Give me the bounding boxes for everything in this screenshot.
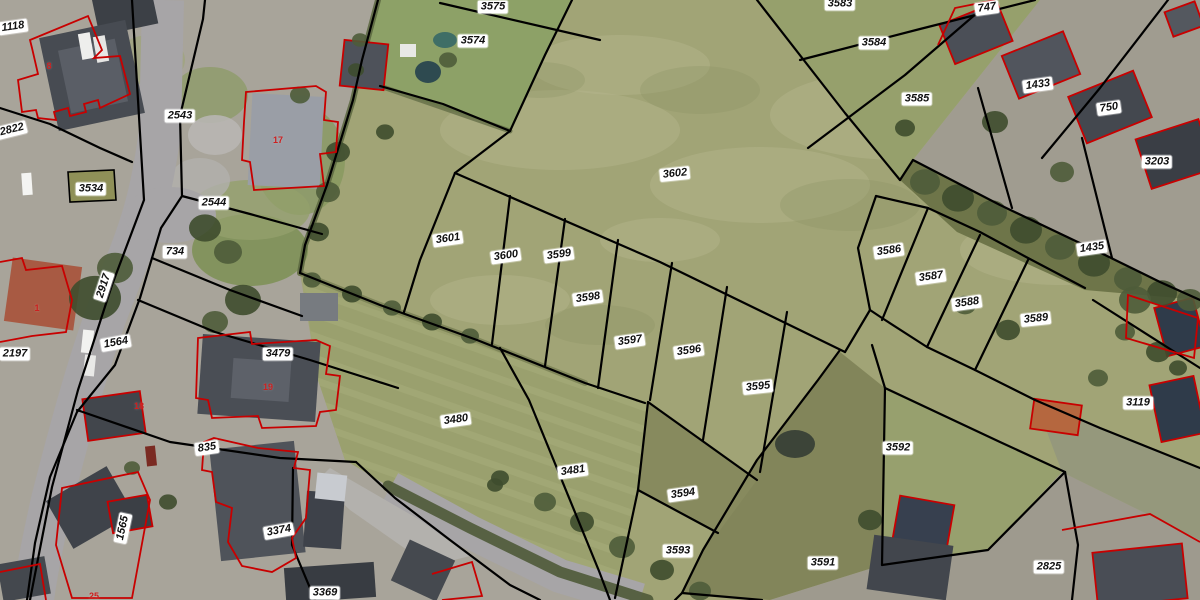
tree <box>689 582 711 600</box>
car <box>145 446 157 467</box>
house-roof <box>300 293 338 321</box>
house-roof <box>1092 543 1187 600</box>
tree <box>159 494 177 509</box>
aerial-map[interactable]: 1118282225433534254473429172197156434798… <box>0 0 1200 600</box>
tree <box>954 296 976 315</box>
tree <box>1119 286 1151 313</box>
terrain-patch <box>545 305 655 345</box>
tree <box>1010 216 1042 243</box>
house-roof <box>284 562 376 600</box>
tree <box>214 240 242 264</box>
house-roof <box>400 44 416 57</box>
tree <box>895 120 915 137</box>
tree <box>439 52 457 67</box>
tree <box>487 478 503 492</box>
tree <box>202 311 228 333</box>
tree <box>858 510 882 530</box>
terrain-patch <box>188 115 242 155</box>
car <box>21 173 33 196</box>
tree <box>910 169 940 195</box>
tree <box>376 124 394 139</box>
tree <box>996 320 1020 340</box>
trampoline <box>775 430 815 458</box>
garden-tarp <box>433 32 457 48</box>
house-roof <box>867 535 954 600</box>
tree <box>977 200 1007 226</box>
house-roof <box>231 358 292 402</box>
tree <box>1169 360 1187 375</box>
tree <box>1050 162 1074 182</box>
aerial-scene <box>0 0 1200 600</box>
terrain-patch <box>640 66 760 114</box>
tree <box>534 493 556 512</box>
terrain-patch <box>172 67 248 123</box>
tree <box>189 214 221 241</box>
parcel-3534-plot <box>68 170 116 202</box>
tree <box>1088 370 1108 387</box>
trampoline <box>415 61 441 83</box>
house-roof <box>0 556 51 600</box>
house-roof <box>340 40 389 90</box>
house-roof <box>315 473 348 502</box>
tree <box>290 87 310 104</box>
tree <box>650 560 674 580</box>
terrain-patch <box>780 179 920 231</box>
house-roof <box>248 93 325 189</box>
tree <box>1078 249 1110 276</box>
tree <box>609 536 635 558</box>
